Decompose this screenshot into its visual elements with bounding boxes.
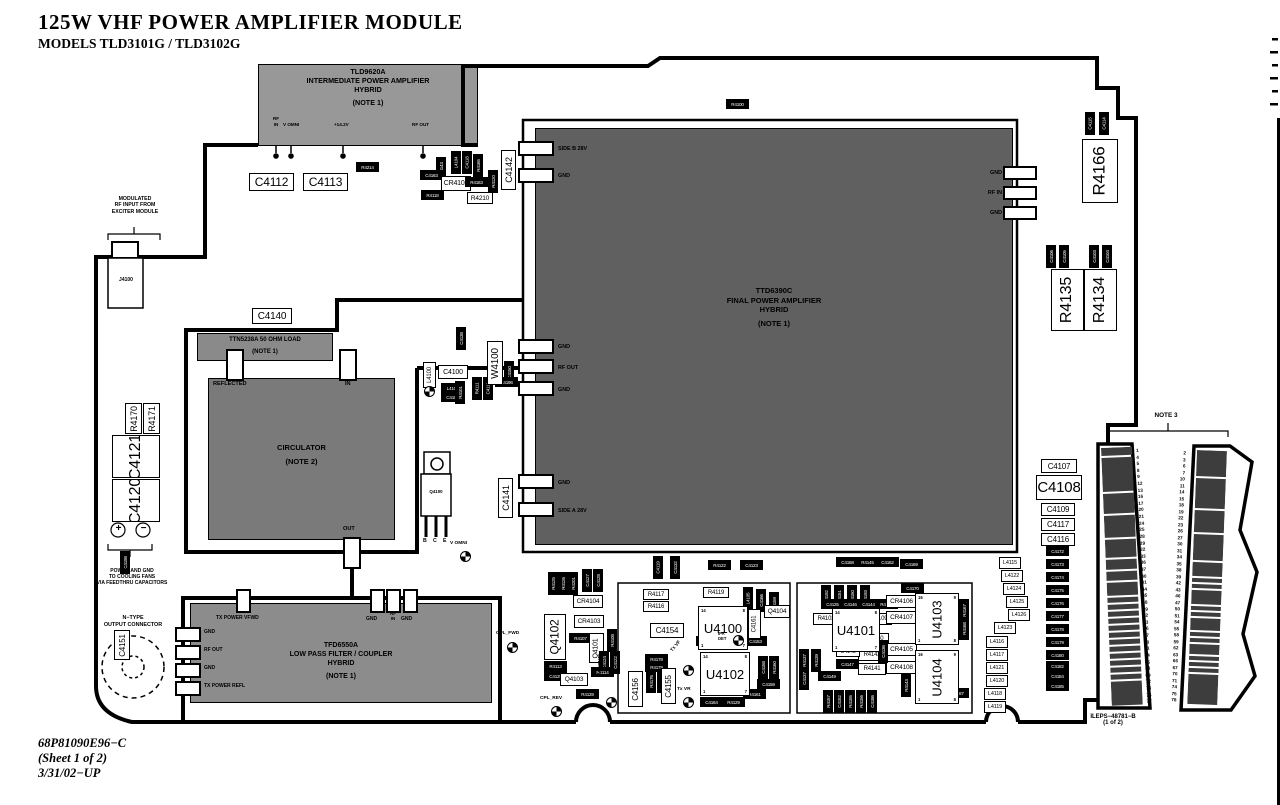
component-label-C4169: C4169 (900, 559, 923, 569)
test-point-label: Tx VR (677, 687, 691, 693)
component-label-C4170: C4170 (901, 583, 924, 593)
connector-pad (1110, 653, 1141, 659)
component-label-C4163: C4163 (420, 170, 443, 180)
connector-pad (1194, 510, 1225, 533)
component-label-R4139: R4139 (811, 649, 821, 672)
ic-pin-number: 7 (743, 643, 745, 648)
connector-pin-number: 58 (1174, 633, 1179, 638)
test-point-label: CPL_REV (540, 696, 562, 702)
annotation-text: J4100 (110, 277, 142, 283)
block-fpa (535, 128, 1013, 545)
component-label-C4159: C4159 (757, 679, 780, 689)
component-label-C4141: C4141 (498, 478, 513, 518)
connector-pad (1108, 604, 1139, 610)
test-point-V-CONT (606, 697, 617, 708)
component-label-C4184: C4184 (1046, 671, 1069, 681)
block-text-line: (NOTE 1) (258, 98, 478, 107)
component-label-L4120: L4120 (986, 675, 1008, 687)
component-label-C4103: C4103 (1089, 245, 1099, 268)
annotation-text: GND (366, 616, 377, 622)
component-label-R4126: R4126 (558, 572, 568, 595)
page-subtitle: MODELS TLD3101G / TLD3102G (38, 36, 240, 52)
component-label-C4127: C4127 (582, 569, 592, 592)
connector-pin-number: 4 (1136, 455, 1149, 460)
ic-pin-number: 8 (745, 654, 747, 659)
connector-pin-number: 51 (1174, 614, 1179, 619)
component-label-R4170: R4170 (125, 403, 142, 434)
connector-pad (1106, 571, 1137, 581)
annotation-text: TX POWER REFL (204, 683, 245, 689)
connector-pad (1109, 632, 1140, 638)
component-label-R4160: R4160 (769, 656, 779, 679)
connector-pin-number: 5 (1137, 462, 1150, 467)
ic-pin-number: 1 (918, 697, 920, 702)
document-footer: 68P81090E96−C (Sheet 1 of 2) 3/31/02−UP (38, 736, 126, 781)
component-label-R4125: R4125 (548, 572, 558, 595)
connector-pin-number: 68 (1145, 666, 1158, 671)
component-label-R4113: R4113 (544, 661, 567, 671)
component-label-R4101: R4101 (455, 381, 465, 404)
connector-pin-number: 71 (1172, 679, 1177, 684)
component-label-R4176: R4176 (646, 670, 656, 693)
connector-pin-number: 15 (1179, 497, 1184, 502)
connector-pin-number: 66 (1173, 659, 1178, 664)
connector-pin-number: 14 (1179, 490, 1184, 495)
note3-label: NOTE 3 (1143, 412, 1189, 419)
component-label-C4132: C4132 (670, 556, 680, 579)
component-label-C4104: C4104 (1102, 245, 1112, 268)
component-label-R4171: R4171 (143, 403, 160, 434)
component-label-L4125: L4125 (1006, 596, 1028, 608)
ic-pin-number: 7 (875, 645, 877, 650)
connector-pin-number: 63 (1173, 653, 1178, 658)
connector-pin-number: 62 (1173, 646, 1178, 651)
test-point-Tx-VF (683, 665, 694, 676)
component-label-C4158: C4158 (758, 656, 768, 679)
test-point-IPA-DET (733, 635, 744, 646)
connector-pad (1192, 584, 1222, 589)
connector-pin-number: 57 (1144, 633, 1157, 638)
test-point-CPL_REV (551, 706, 562, 717)
component-label-C4174: C4174 (1046, 572, 1069, 582)
connector-pin-number: 70 (1172, 672, 1177, 677)
connector-pad (1193, 534, 1224, 561)
connector-pin-number: 46 (1175, 594, 1180, 599)
component-label-C4114: C4114 (1099, 112, 1109, 135)
n-type-connector-circles (102, 636, 164, 698)
connector-pad (1111, 674, 1142, 680)
annotation-text: Q4100 (421, 489, 451, 494)
annotation-text: OUT (343, 526, 355, 533)
connector-pad (1189, 656, 1219, 661)
component-label-C4116: C4116 (1041, 533, 1075, 546)
component-label-C4156: C4156 (628, 671, 643, 707)
component-label-L4117: L4117 (986, 649, 1008, 661)
connector-pin-number: 32 (1140, 548, 1153, 553)
component-label-CR4104: CR4104 (573, 595, 603, 608)
connector-pin-number: 37 (1141, 567, 1154, 572)
connector-pin-number: 26 (1178, 529, 1183, 534)
component-label-C4118: C4118 (462, 151, 472, 174)
annotation-text: GND (204, 629, 215, 635)
component-label-L4123: L4123 (994, 622, 1016, 634)
connector-pin-number: 1 (1136, 448, 1149, 453)
ic-pin-number: 7 (745, 689, 747, 694)
block-text-line: (NOTE 1) (535, 319, 1013, 329)
component-label-L4115: L4115 (999, 557, 1021, 569)
component-label-R4135: R4135 (1051, 269, 1084, 331)
component-label-R4116: R4116 (643, 601, 669, 612)
annotation-text: GND (974, 210, 1002, 217)
ic-U4104: U410416918 (915, 650, 959, 704)
component-label-R4120: R4120 (488, 170, 498, 193)
annotation-text: MODULATED RF INPUT FROM EXCITER MODULE (97, 196, 173, 215)
block-text-line: (NOTE 2) (208, 457, 395, 467)
component-label-C4154: C4154 (650, 623, 684, 638)
connector-pin-number: 56 (1143, 627, 1156, 632)
connector-pin-number: 72 (1146, 680, 1159, 685)
component-label-C4117: C4117 (1041, 518, 1075, 531)
connector-pin-number: 49 (1143, 607, 1156, 612)
component-label-C4106: C4106 (1046, 245, 1056, 268)
connector-pin-number: 65 (1145, 660, 1158, 665)
ic-pin-number: 9 (954, 595, 956, 600)
component-label-C4112: C4112 (249, 173, 294, 191)
connector-pad (1101, 447, 1132, 456)
connector-pin-number: 7 (1183, 471, 1186, 476)
annotation-text: GND (401, 616, 412, 622)
block-circ-text: CIRCULATOR(NOTE 2) (208, 443, 395, 466)
connector-pad (1192, 562, 1223, 577)
connector-pin-number: 54 (1174, 620, 1179, 625)
component-label-R4134: R4134 (1084, 269, 1117, 331)
annotation-text: GND (558, 387, 570, 394)
connector-pad (1103, 493, 1135, 514)
connector-pin-number: 38 (1176, 568, 1181, 573)
connector-pin-number: 20 (1138, 508, 1151, 513)
component-label-C4172: C4172 (1046, 546, 1069, 556)
annotation-text: V OMNI (283, 122, 299, 128)
component-label-C4121: C4121 (112, 435, 160, 478)
connector-pads-right (1187, 450, 1227, 705)
component-label-C4113: C4113 (303, 173, 348, 191)
component-label-R4117: R4117 (643, 589, 669, 600)
connector-pin-number: 13 (1138, 488, 1151, 493)
connector-pin-number: 61 (1144, 647, 1157, 652)
connector-pin-number: 2 (1183, 451, 1186, 456)
component-label-R4119: R4119 (703, 587, 729, 598)
block-text-line: HYBRID (535, 305, 1013, 315)
test-point-Tx-VR (683, 697, 694, 708)
connector-pin-number: 50 (1175, 607, 1180, 612)
component-label-L4126: L4126 (1008, 609, 1030, 621)
annotation-text: GND (204, 665, 215, 671)
component-label-R4143: R4143 (901, 674, 911, 697)
connector-pin-number: 40 (1141, 574, 1154, 579)
component-label-R4128: R4128 (576, 689, 599, 699)
component-label-C4147: C4147 (836, 659, 859, 669)
block-text-line: TTN5238A 50 OHM LOAD (197, 336, 333, 344)
component-label-R4163: R4163 (465, 177, 488, 187)
connector-pad (1189, 662, 1219, 667)
connector-pad (1196, 450, 1227, 477)
component-label-R4100: R4100 (726, 99, 749, 109)
connector-pin-number: 74 (1172, 685, 1177, 690)
connector-pin-number: 73 (1146, 686, 1159, 691)
ic-pin-number: 14 (703, 654, 708, 659)
connector-pin-number: 45 (1142, 594, 1155, 599)
connector-pin-number: 76 (1146, 693, 1159, 698)
connector-pad (1109, 646, 1140, 652)
block-text-line: TLD9620A (258, 67, 478, 76)
connector-pad (1111, 680, 1143, 705)
connector-pin-number: 9 (1137, 475, 1150, 480)
connector-pad (1101, 457, 1133, 492)
annotation-text: GND (558, 173, 570, 180)
component-label-C4123: C4123 (740, 560, 763, 570)
component-label-C4105: C4105 (1059, 245, 1069, 268)
connector-pad (1191, 590, 1222, 605)
connector-pin-number: 67 (1172, 666, 1177, 671)
annotation-text: − (137, 523, 150, 535)
annotation-text: IN (345, 381, 351, 388)
component-label-R4201: R4201 (568, 572, 578, 595)
component-label-L4121: L4121 (986, 662, 1008, 674)
annotation-text: N−TYPE OUTPUT CONNECTOR (88, 615, 178, 628)
ic-U4103: U410316918 (915, 593, 959, 645)
ic-pin-number: 9 (954, 652, 956, 657)
annotation-text: B (423, 538, 427, 544)
annotation-text: RF IN (386, 611, 400, 622)
annotation-text: TX POWER VFWD (216, 615, 259, 621)
component-label-C4149: C4149 (818, 671, 841, 681)
connector-pin-number: 41 (1142, 581, 1155, 586)
connector-pin-number: 24 (1139, 521, 1152, 526)
ic-pin-number: 1 (918, 638, 920, 643)
ic-pin-number: 1 (701, 643, 703, 648)
connector-pin-number: 25 (1139, 528, 1152, 533)
connector-pin-number: 52 (1143, 614, 1156, 619)
connector-pin-number: 33 (1140, 554, 1153, 559)
component-label-R4108: R4108 (607, 629, 617, 652)
ic-pin-number: 8 (954, 697, 956, 702)
ic-pin-number: 1 (835, 645, 837, 650)
connector-pin-number: 22 (1178, 516, 1183, 521)
connector-pin-number: 19 (1178, 510, 1183, 515)
connector-pin-number: 35 (1176, 562, 1181, 567)
connector-pad (1188, 668, 1218, 673)
connector-pin-number: 36 (1141, 561, 1154, 566)
component-label-L4116: L4116 (986, 636, 1008, 648)
ic-pin-number: 8 (743, 608, 745, 613)
connector-pin-number: 8 (1137, 468, 1150, 473)
connector-pin-number: 12 (1137, 481, 1150, 486)
connector-pad (1190, 618, 1220, 631)
connector-pin-number: 48 (1142, 600, 1155, 605)
connector-pad (1106, 559, 1137, 570)
connector-pin-number: 16 (1138, 495, 1151, 500)
connector-pin-number: 10 (1180, 477, 1185, 482)
block-text-line: INTERMEDIATE POWER AMPLIFIER (258, 76, 478, 85)
connector-pin-number: 23 (1178, 523, 1183, 528)
test-point-CPL_FWD (507, 642, 518, 653)
block-ipa-text: TLD9620AINTERMEDIATE POWER AMPLIFIERHYBR… (258, 67, 478, 107)
component-label-C4164: C4164 (700, 697, 723, 707)
component-label-L4122: L4122 (1001, 570, 1023, 582)
connector-pin-number: 60 (1144, 640, 1157, 645)
component-label-W4100: W4100 (487, 341, 503, 385)
connector-pin-number: 78 (1171, 698, 1176, 703)
component-label-R4122: R4122 (708, 560, 731, 570)
connector-pin-number: 44 (1142, 587, 1155, 592)
connector-pin-number: 31 (1177, 549, 1182, 554)
component-label-Q4104: Q4104 (764, 605, 790, 618)
component-label-C4178: C4178 (1046, 624, 1069, 634)
annotation-text: E (443, 538, 446, 544)
component-label-C4162: C4162 (876, 557, 899, 567)
component-label-C4179: C4179 (1046, 637, 1069, 647)
component-label-Q4103: Q4103 (560, 673, 588, 686)
connector-pad (1195, 478, 1226, 509)
block-fpa-text: TTD6390CFINAL POWER AMPLIFIERHYBRID(NOTE… (535, 286, 1013, 328)
component-label-R4157: R4157 (823, 690, 833, 713)
connector-pin-number: 69 (1145, 673, 1158, 678)
block-lpf-text: TFD6550ALOW PASS FILTER / COUPLERHYBRID(… (190, 641, 492, 681)
ic-pin-number: 16 (918, 652, 923, 657)
annotation-text: SIDE A 28V (558, 508, 587, 515)
annotation-text: RF IN (974, 190, 1002, 197)
component-label-C4119: C4119 (653, 556, 663, 579)
connector-pad (1108, 618, 1139, 624)
doc-number: 68P81090E96−C (38, 736, 126, 751)
connector-pin-number: 21 (1139, 514, 1152, 519)
connector-pad (1190, 632, 1220, 637)
connector-pin-number: 34 (1177, 555, 1182, 560)
connector-pin-number: 18 (1179, 503, 1184, 508)
ic-pin-number: 14 (701, 608, 706, 613)
test-point-label: V CONT (598, 656, 604, 674)
connector-pin-number: 42 (1176, 581, 1181, 586)
connector-pin-number: 53 (1143, 620, 1156, 625)
connector-pin-number: 3 (1183, 458, 1186, 463)
test-point-label: V OMNI (450, 541, 467, 547)
block-text-line: (NOTE 1) (190, 672, 492, 681)
test-point-label: CPL_FWD (496, 631, 519, 637)
connector-pin-number: 47 (1175, 601, 1180, 606)
component-label-R4166: R4166 (1082, 139, 1118, 203)
connector-pad (1109, 639, 1140, 645)
component-label-L4124: L4124 (1003, 583, 1025, 595)
component-label-C4120: C4120 (112, 479, 160, 522)
connector-pad (1191, 612, 1221, 617)
connector-pad (1105, 539, 1137, 558)
connector-pads-left (1101, 447, 1143, 706)
component-label-R4111: R4111 (472, 377, 482, 400)
connector-pad (1107, 597, 1138, 603)
annotation-text: GND (974, 170, 1002, 177)
block-text-line: CIRCULATOR (208, 443, 395, 453)
annotation-text: C (433, 538, 437, 544)
ic-pin-number: 8 (875, 610, 877, 615)
annotation-text: RF OUT (412, 122, 429, 128)
connector-pin-number: 77 (1147, 699, 1160, 704)
connector-pin-number: 59 (1173, 640, 1178, 645)
doc-rev: 3/31/02−UP (38, 766, 126, 781)
connector-pad (1189, 644, 1219, 655)
component-label-C4140: C4140 (252, 308, 292, 324)
component-label-C4186: C4186 (867, 690, 877, 713)
connector-pin-number: 6 (1183, 464, 1186, 469)
connector-pad (1190, 638, 1220, 643)
connector-pad (1191, 606, 1221, 611)
block-text-line: LOW PASS FILTER / COUPLER (190, 650, 492, 659)
connector-pin-number: 11 (1180, 484, 1185, 489)
connector-pad (1192, 578, 1222, 583)
connector-pad (1108, 625, 1139, 631)
component-label-R4165: R4165 (473, 154, 483, 177)
annotation-text: GND (558, 480, 570, 487)
component-label-R4129: R4129 (722, 697, 745, 707)
connector-pin-number: 75 (1171, 692, 1176, 697)
component-label-C4151: C4151 (114, 630, 130, 660)
component-label-C4137: C4137 (799, 667, 809, 690)
block-load-text: TTN5238A 50 OHM LOAD(NOTE 1) (197, 336, 333, 356)
component-label-C4173: C4173 (1046, 559, 1069, 569)
connector-pad (1104, 515, 1136, 538)
component-label-CR4107: CR4107 (886, 611, 917, 624)
component-label-C4176: C4176 (1046, 598, 1069, 608)
component-label-C4180: C4180 (1046, 650, 1069, 660)
component-label-C4185: C4185 (1046, 681, 1069, 691)
component-label-C4100: C4100 (438, 365, 468, 379)
component-label-C4138: C4138 (456, 327, 466, 350)
component-label-CR4108: CR4108 (886, 661, 917, 674)
annotation-text: GND (558, 344, 570, 351)
component-label-L4119: L4119 (984, 701, 1006, 713)
connector-pin-number: 39 (1176, 575, 1181, 580)
component-label-C4128: C4128 (593, 569, 603, 592)
ic-U4101: U410114817 (832, 608, 880, 652)
connector-pin-number: 64 (1145, 653, 1158, 658)
component-label-C4107: C4107 (1041, 459, 1077, 473)
component-label-R4214: R4214 (356, 162, 379, 172)
connector-part-number: ILEPS−48781−B (1 of 2) (1080, 714, 1146, 726)
component-label-R4141: R4141 (858, 663, 886, 675)
component-label-R4156: R4156 (856, 690, 866, 713)
component-label-R4168: R4168 (959, 617, 969, 640)
ic-pin-number: 8 (954, 638, 956, 643)
ic-pin-number: 14 (835, 610, 840, 615)
connector-pad (1107, 582, 1139, 596)
ic-pin-number: 16 (918, 595, 923, 600)
test-point (424, 386, 435, 397)
connector-pin-number: 28 (1140, 534, 1153, 539)
annotation-text: + (112, 523, 125, 535)
component-label-C4175: C4175 (1046, 585, 1069, 595)
component-label-C4161: C4161 (748, 609, 761, 639)
annotation-text: POWER AND GND TO COOLING FANS VIA FEEDTH… (82, 568, 182, 586)
connector-pin-number: 27 (1177, 536, 1182, 541)
component-label-CR4106: CR4106 (886, 595, 917, 608)
component-label-Q4102: Q4102 (544, 614, 566, 660)
component-label-C4152: C4152 (834, 690, 844, 713)
block-text-line: TFD6550A (190, 641, 492, 650)
ic-pin-number: 1 (703, 689, 705, 694)
component-label-L4118: L4118 (984, 688, 1006, 700)
component-label-L4100: L4100 (423, 362, 436, 388)
component-label-R4155: R4155 (845, 690, 855, 713)
block-text-line: HYBRID (190, 659, 492, 668)
